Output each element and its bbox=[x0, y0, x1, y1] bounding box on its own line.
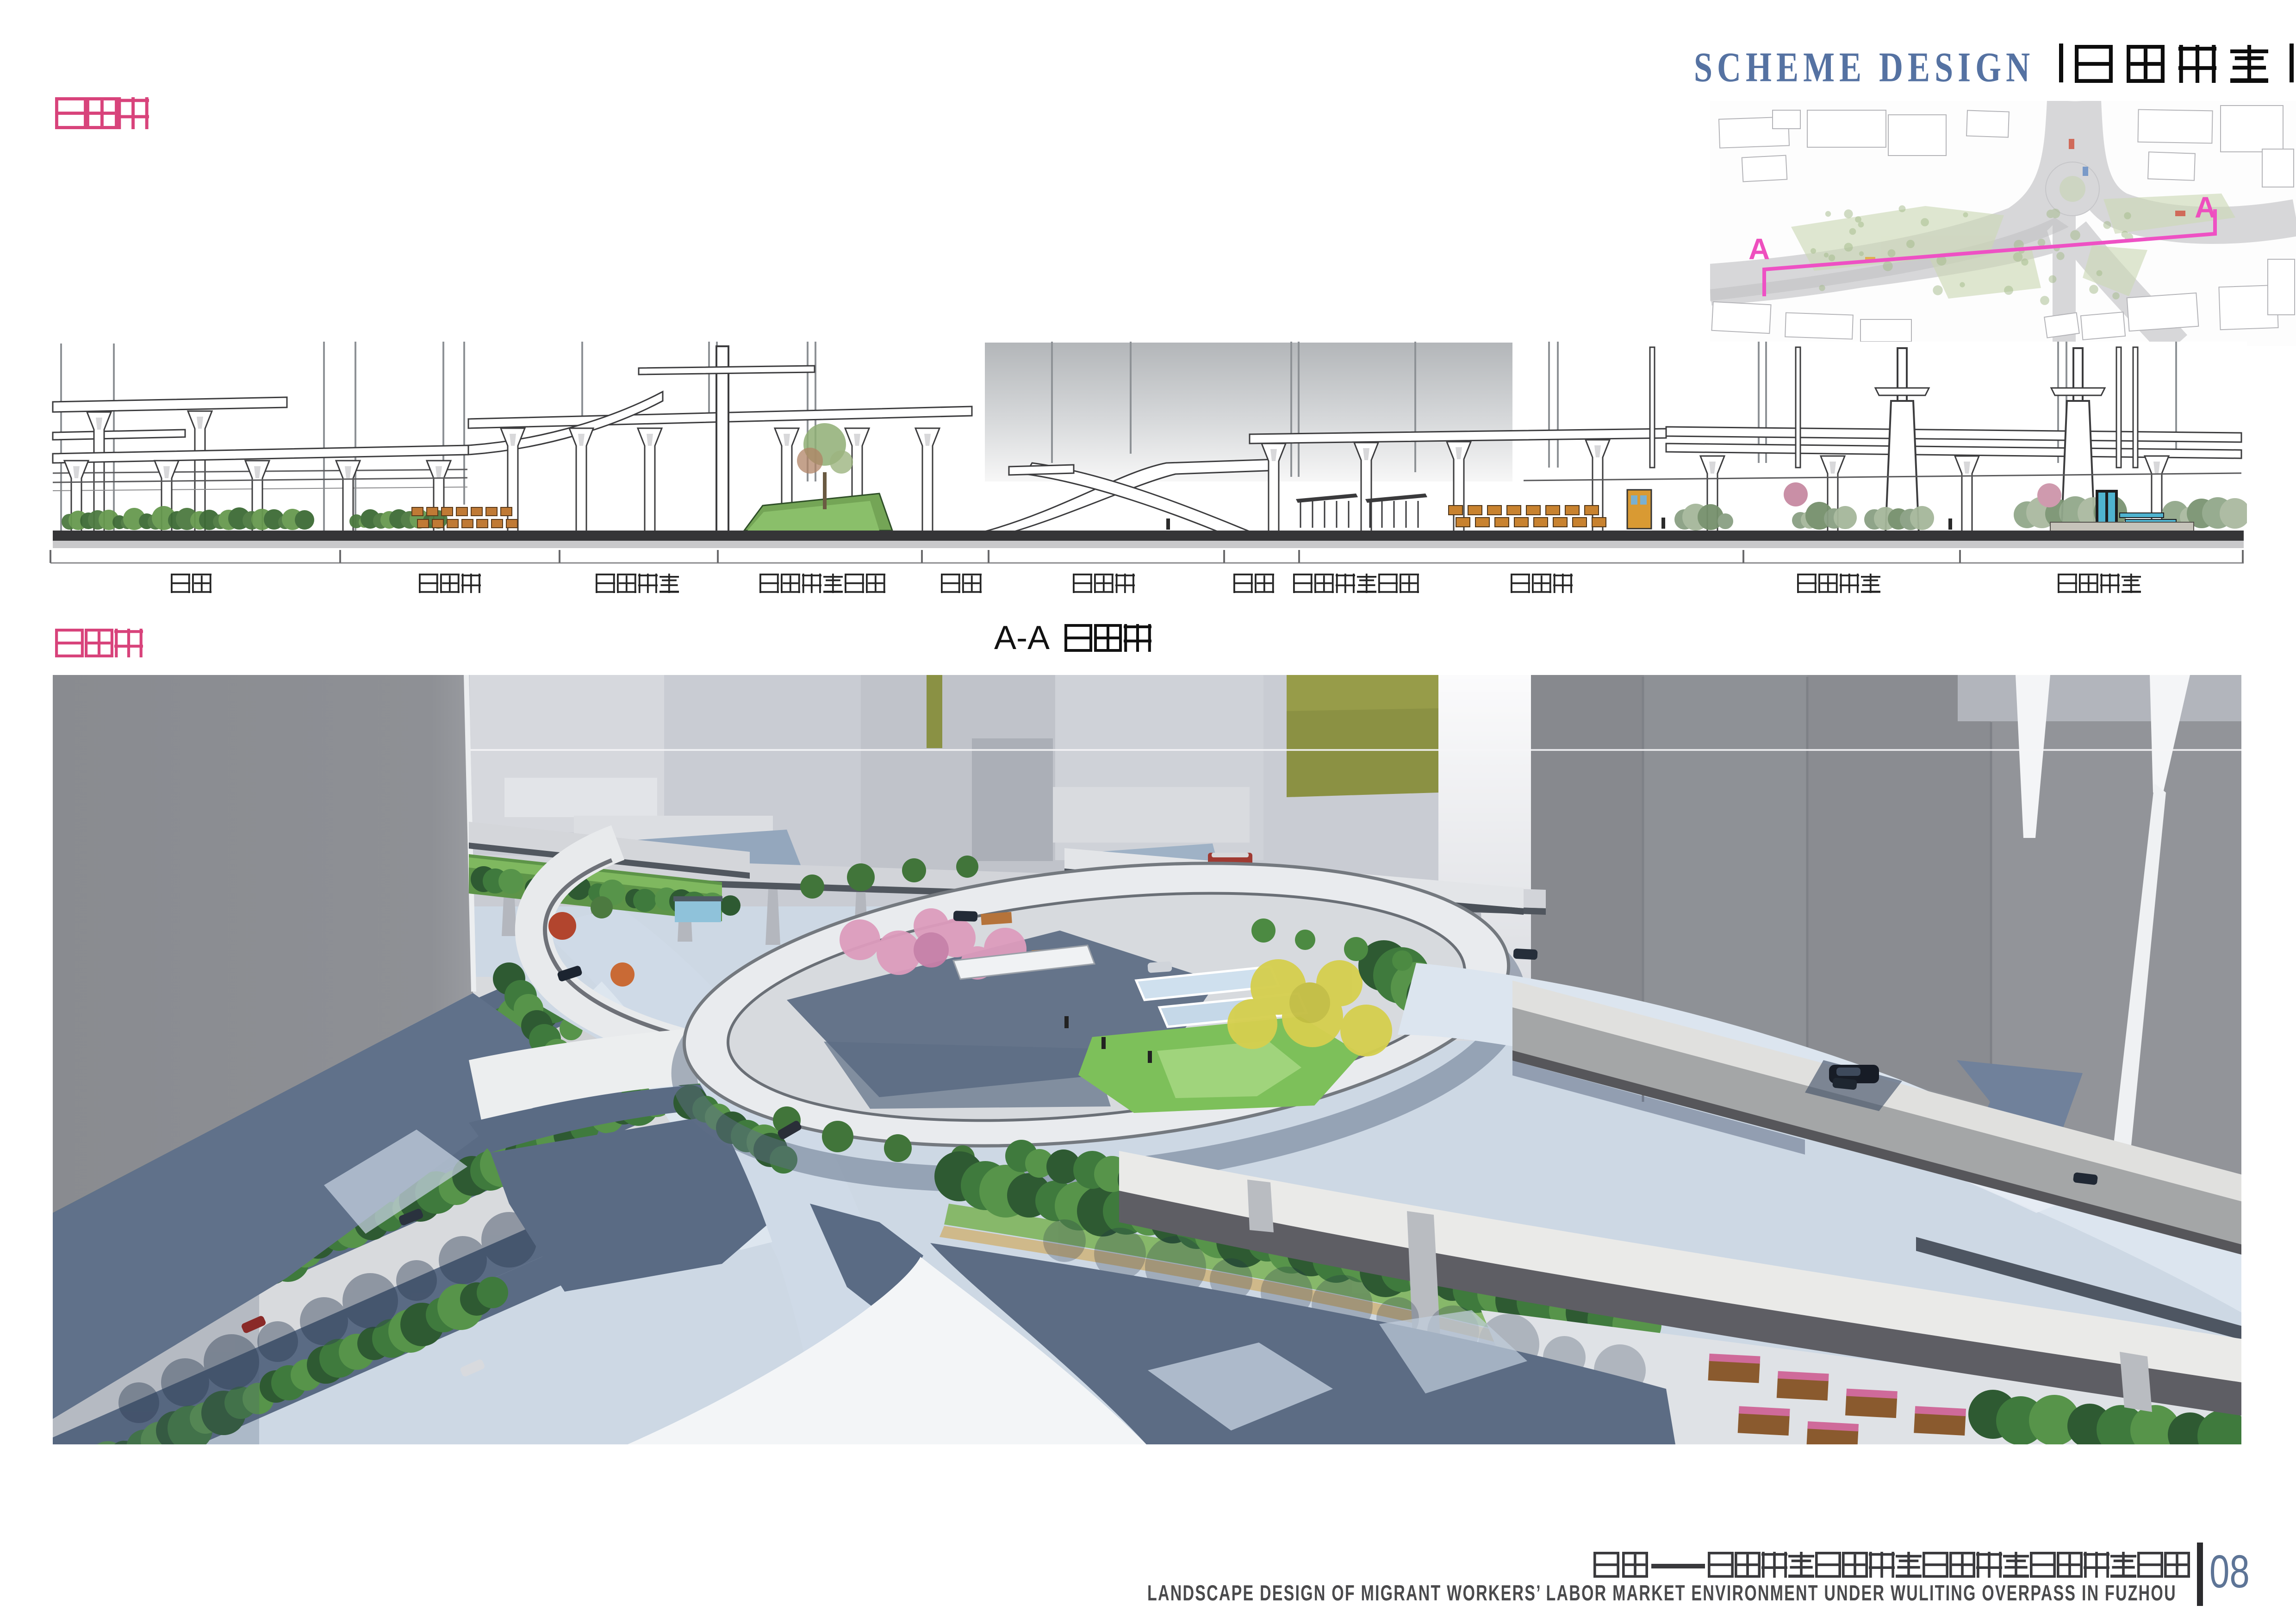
svg-text:A: A bbox=[1748, 232, 1770, 266]
svg-text:A: A bbox=[2195, 191, 2216, 224]
